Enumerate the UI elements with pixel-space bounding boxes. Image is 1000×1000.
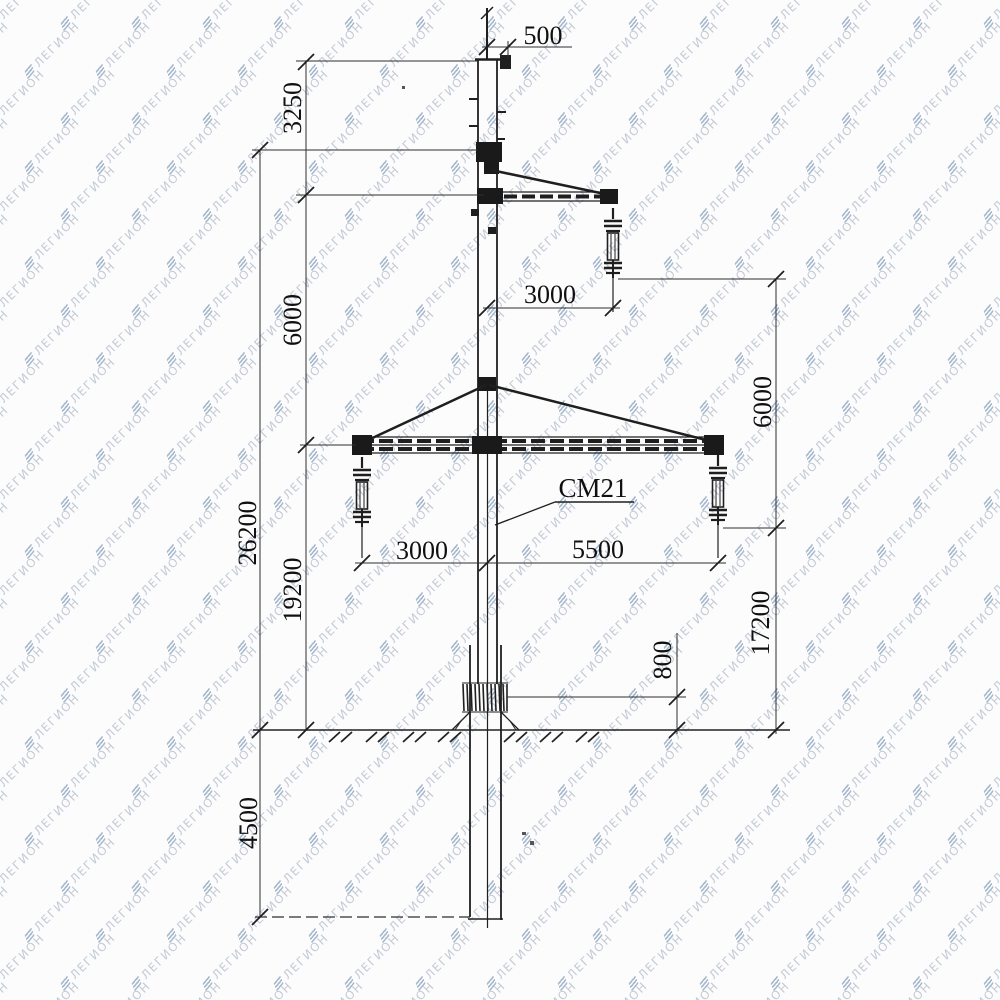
dim-pole-top-width: 500 (524, 21, 563, 50)
dimension-ticks (252, 39, 784, 925)
upper-crossarm (476, 142, 618, 204)
dim-lower-left-wire-offset: 3000 (396, 536, 448, 565)
pole-elevation-drawing: 500 3250 3000 6000 26200 19200 3000 5500… (0, 0, 1000, 1000)
dim-upper-wire-to-lower-wire: 6000 (748, 376, 777, 428)
dim-embedment-depth: 4500 (234, 797, 263, 849)
dimension-lines (260, 47, 776, 917)
pole-shaft (469, 55, 511, 928)
structure-label: СМ21 (558, 473, 627, 503)
dim-foundation-top-above-ground: 800 (648, 641, 677, 680)
extension-lines (252, 41, 786, 917)
lower-crossarm (352, 377, 724, 455)
dim-attachment-to-ground: 26200 (233, 501, 262, 566)
dim-lower-right-wire-offset: 5500 (572, 535, 624, 564)
soil-hatch (329, 732, 599, 742)
dim-upper-wire-offset: 3000 (524, 280, 576, 309)
lower-right-insulator-string (709, 455, 727, 525)
dim-lower-crossarm-to-ground: 19200 (278, 558, 307, 623)
dim-top-to-upper-crossarm: 3250 (278, 82, 307, 134)
lower-left-insulator-string (353, 457, 371, 527)
scan-artifacts (402, 86, 534, 845)
ground-line (253, 712, 790, 742)
structure-label-callout: СМ21 (495, 473, 634, 525)
foundation (462, 645, 508, 920)
upper-insulator-string (604, 208, 622, 278)
dim-upper-to-lower-crossarm: 6000 (278, 294, 307, 346)
dim-lower-wire-to-ground: 17200 (746, 591, 775, 656)
leader-line (495, 502, 555, 525)
scanned-drawing-page: ЛЕГИОНЛЕГИОНЛЕГИОНЛЕГИОНЛЕГИОНЛЕГИОНЛЕГИ… (0, 0, 1000, 1000)
